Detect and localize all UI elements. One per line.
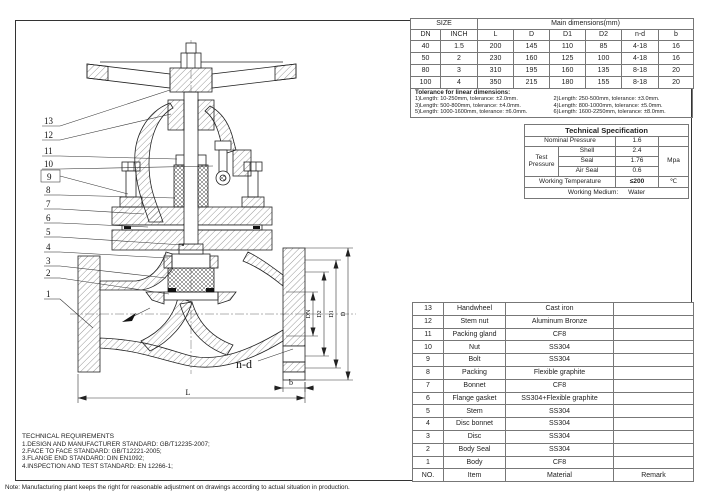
callout-11: 11 — [42, 146, 177, 159]
packing — [198, 165, 208, 207]
table-footer-row: NO.ItemMaterialRemark — [413, 469, 694, 482]
part-item: Body — [444, 456, 506, 469]
size-cell: 50 — [411, 53, 441, 65]
size-cell: 40 — [411, 41, 441, 53]
part-item: Packing — [444, 366, 506, 379]
table-row: 6Flange gasketSS304+Flexible graphite — [413, 392, 694, 405]
size-cell: 110 — [550, 41, 586, 53]
spec-label: Nominal Pressure — [525, 137, 616, 147]
part-material: CF8 — [506, 328, 614, 341]
gland-bolt — [215, 141, 231, 185]
table-row: 2Body SealSS304 — [413, 443, 694, 456]
svg-text:9: 9 — [47, 172, 52, 182]
table-row: 7BonnetCF8 — [413, 379, 694, 392]
size-row: 100 4 350 215 180 155 8-18 20 — [411, 77, 694, 89]
footer-material: Material — [506, 469, 614, 482]
svg-text:6: 6 — [46, 213, 51, 223]
part-no: 6 — [413, 392, 444, 405]
stem-nut — [198, 100, 214, 130]
part-no: 4 — [413, 418, 444, 431]
flow-arrow-icon — [122, 308, 150, 322]
callout-8: 8 — [44, 185, 175, 198]
spec-value: ≤200 — [616, 177, 659, 188]
size-cell: 85 — [586, 41, 622, 53]
footer-note: Note: Manufacturing plant keeps the righ… — [5, 484, 350, 491]
footer-no: NO. — [413, 469, 444, 482]
right-flange — [283, 248, 305, 380]
part-no: 12 — [413, 315, 444, 328]
col-header: b — [659, 30, 694, 41]
col-header: INCH — [441, 30, 478, 41]
spec-label: Air Seal — [559, 167, 616, 177]
part-no: 5 — [413, 405, 444, 418]
size-cell: 3 — [441, 65, 478, 77]
tolerance-item: 3)Length: 500-800mm, tolerance: ±4.0mm. — [415, 103, 554, 110]
size-cell: 100 — [586, 53, 622, 65]
part-remark — [614, 430, 694, 443]
handwheel — [87, 43, 296, 92]
technical-requirements: TECHNICAL REQUIREMENTS 1.DESIGN AND MANU… — [22, 433, 362, 470]
part-material: Cast iron — [506, 303, 614, 316]
col-header: DN — [411, 30, 441, 41]
svg-text:12: 12 — [44, 130, 53, 140]
spec-unit — [659, 137, 689, 147]
dim-label-DN: DN — [306, 309, 312, 318]
svg-text:1: 1 — [46, 289, 51, 299]
flange-bolt-hole — [283, 346, 305, 362]
part-no: 8 — [413, 366, 444, 379]
footer-remark: Remark — [614, 469, 694, 482]
working-medium-value: Water — [628, 189, 645, 196]
size-cell: 230 — [478, 53, 514, 65]
size-cell: 135 — [586, 65, 622, 77]
spec-label: Seal — [559, 157, 616, 167]
part-no: 13 — [413, 303, 444, 316]
footer-item: Item — [444, 469, 506, 482]
table-row: 3DiscSS304 — [413, 430, 694, 443]
tolerance-item: 2)Length: 250-500mm, tolerance: ±3.0mm. — [554, 96, 693, 103]
part-material: SS304 — [506, 418, 614, 431]
size-cell: 180 — [550, 77, 586, 89]
part-remark — [614, 405, 694, 418]
dim-label-L: L — [186, 388, 191, 397]
spec-label: Shell — [559, 147, 616, 157]
part-material: CF8 — [506, 379, 614, 392]
spec-value: 1.76 — [616, 157, 659, 167]
dim-label-nd: n-d — [236, 357, 252, 371]
part-material: Flexible graphite — [506, 366, 614, 379]
part-no: 11 — [413, 328, 444, 341]
svg-text:2: 2 — [46, 268, 51, 278]
size-cell: 160 — [514, 53, 550, 65]
part-item: Nut — [444, 341, 506, 354]
part-no: 1 — [413, 456, 444, 469]
technical-specification-table: Technical Specification Nominal Pressure… — [524, 124, 689, 199]
col-header: n-d — [622, 30, 659, 41]
tolerance-item: 6)Length: 1600-2250mm, tolerance: ±8.0mm… — [554, 109, 693, 116]
handwheel-hub — [170, 68, 212, 92]
size-cell: 1.5 — [441, 41, 478, 53]
svg-text:3: 3 — [46, 256, 51, 266]
spec-title: Technical Specification — [525, 125, 689, 137]
spec-label: Working Temperature — [525, 177, 616, 188]
part-no: 2 — [413, 443, 444, 456]
table-row: 8PackingFlexible graphite — [413, 366, 694, 379]
part-material: SS304+Flexible graphite — [506, 392, 614, 405]
svg-text:8: 8 — [46, 185, 51, 195]
part-remark — [614, 392, 694, 405]
spec-label: Working Medium: Water — [525, 188, 689, 199]
spec-value: 1.6 — [616, 137, 659, 147]
table-row: 4Disc bonnetSS304 — [413, 418, 694, 431]
size-cell: 195 — [514, 65, 550, 77]
svg-text:10: 10 — [44, 159, 54, 169]
dim-label-D: D — [341, 311, 347, 316]
part-material: SS304 — [506, 341, 614, 354]
stem — [184, 92, 198, 244]
stem-nut-top — [181, 53, 201, 68]
size-cell: 2 — [441, 53, 478, 65]
spec-label: Test Pressure — [525, 147, 559, 177]
part-no: 10 — [413, 341, 444, 354]
disc-bonnet — [172, 254, 210, 268]
size-cell: 4-18 — [622, 41, 659, 53]
dimension-L: L — [78, 374, 305, 403]
size-cell: 145 — [514, 41, 550, 53]
size-cell: 4 — [441, 77, 478, 89]
part-remark — [614, 328, 694, 341]
size-cell: 155 — [586, 77, 622, 89]
part-item: Bonnet — [444, 379, 506, 392]
part-no: 9 — [413, 354, 444, 367]
size-cell: 100 — [411, 77, 441, 89]
packing — [174, 165, 184, 207]
size-row: 50 2 230 160 125 100 4-18 16 — [411, 53, 694, 65]
main-dimensions-header: Main dimensions(mm) — [478, 19, 694, 30]
svg-text:4: 4 — [46, 242, 51, 252]
tolerance-item: 5)Length: 1000-1600mm, tolerance: ±6.0mm… — [415, 109, 554, 116]
col-header: L — [478, 30, 514, 41]
table-row: 5StemSS304 — [413, 405, 694, 418]
size-row: 80 3 310 195 160 135 8-18 20 — [411, 65, 694, 77]
part-item: Flange gasket — [444, 392, 506, 405]
size-cell: 20 — [659, 65, 694, 77]
dim-label-D1: D1 — [329, 310, 335, 317]
size-cell: 350 — [478, 77, 514, 89]
col-header: D1 — [550, 30, 586, 41]
part-item: Packing gland — [444, 328, 506, 341]
stem-nut — [168, 100, 184, 130]
table-row: 11Packing glandCF8 — [413, 328, 694, 341]
part-remark — [614, 418, 694, 431]
part-remark — [614, 456, 694, 469]
part-remark — [614, 303, 694, 316]
svg-text:13: 13 — [44, 116, 54, 126]
part-material: SS304 — [506, 443, 614, 456]
callout-9: 9 — [41, 170, 128, 194]
part-remark — [614, 443, 694, 456]
body-seal — [164, 292, 218, 300]
spec-value: 0.6 — [616, 167, 659, 177]
svg-text:5: 5 — [46, 227, 51, 237]
part-item: Bolt — [444, 354, 506, 367]
size-cell: 16 — [659, 53, 694, 65]
size-cell: 20 — [659, 77, 694, 89]
tech-req-item: 1.DESIGN AND MANUFACTURER STANDARD: GB/T… — [22, 441, 362, 448]
spec-unit: Mpa — [659, 147, 689, 177]
part-remark — [614, 379, 694, 392]
tech-req-title: TECHNICAL REQUIREMENTS — [22, 433, 362, 441]
spec-unit: ℃ — [659, 177, 689, 188]
size-cell: 4-18 — [622, 53, 659, 65]
part-material: SS304 — [506, 354, 614, 367]
size-table: SIZE Main dimensions(mm) DN INCH L D D1 … — [410, 18, 694, 89]
part-remark — [614, 366, 694, 379]
size-cell: 310 — [478, 65, 514, 77]
tech-req-item: 3.FLANGE END STANDARD: DIN EN1092; — [22, 455, 362, 462]
dim-label-b: b — [289, 378, 293, 387]
tolerance-title: Tolerance for linear dimensions: — [415, 89, 692, 96]
table-row: 9BoltSS304 — [413, 354, 694, 367]
working-medium-label: Working Medium: — [568, 189, 618, 196]
table-row: 12Stem nutAluminum Bronze — [413, 315, 694, 328]
part-item: Disc — [444, 430, 506, 443]
size-cell: 160 — [550, 65, 586, 77]
part-item: Body Seal — [444, 443, 506, 456]
size-cell: 80 — [411, 65, 441, 77]
part-material: Aluminum Bronze — [506, 315, 614, 328]
part-remark — [614, 315, 694, 328]
parts-table: 13HandwheelCast iron 12Stem nutAluminum … — [412, 302, 694, 482]
part-no: 7 — [413, 379, 444, 392]
tolerance-item: 1)Length: 10-250mm, tolerance: ±2.0mm. — [415, 96, 554, 103]
part-item: Disc bonnet — [444, 418, 506, 431]
part-remark — [614, 341, 694, 354]
part-material: SS304 — [506, 405, 614, 418]
part-item: Handwheel — [444, 303, 506, 316]
tech-req-item: 2.FACE TO FACE STANDARD: GB/T12221-2005; — [22, 448, 362, 455]
part-item: Stem — [444, 405, 506, 418]
size-cell: 215 — [514, 77, 550, 89]
part-material: CF8 — [506, 456, 614, 469]
table-row: 1BodyCF8 — [413, 456, 694, 469]
svg-text:7: 7 — [46, 199, 51, 209]
size-cell: 16 — [659, 41, 694, 53]
col-header: D2 — [586, 30, 622, 41]
tech-req-item: 4.INSPECTION AND TEST STANDARD: EN 12266… — [22, 463, 362, 470]
spec-value: 2.4 — [616, 147, 659, 157]
size-cell: 8-18 — [622, 77, 659, 89]
part-remark — [614, 354, 694, 367]
table-row: 10NutSS304 — [413, 341, 694, 354]
size-cell: 125 — [550, 53, 586, 65]
part-material: SS304 — [506, 430, 614, 443]
part-item: Stem nut — [444, 315, 506, 328]
size-header: SIZE — [411, 19, 478, 30]
left-flange — [78, 256, 100, 372]
callout-3: 3 — [44, 256, 166, 278]
size-cell: 200 — [478, 41, 514, 53]
table-row: 13HandwheelCast iron — [413, 303, 694, 316]
col-header: D — [514, 30, 550, 41]
size-row: 40 1.5 200 145 110 85 4-18 16 — [411, 41, 694, 53]
tolerance-item: 4)Length: 800-1000mm, tolerance: ±5.0mm. — [554, 103, 693, 110]
size-cell: 8-18 — [622, 65, 659, 77]
page: { "sheet": { "note": "Note: Manufacturin… — [0, 0, 708, 500]
svg-text:11: 11 — [44, 146, 53, 156]
valve-section-drawing: L b DN D2 D1 D n-d 13 — [15, 20, 411, 481]
part-no: 3 — [413, 430, 444, 443]
dim-label-D2: D2 — [317, 310, 323, 317]
tolerance-block: Tolerance for linear dimensions: 1)Lengt… — [410, 88, 693, 118]
